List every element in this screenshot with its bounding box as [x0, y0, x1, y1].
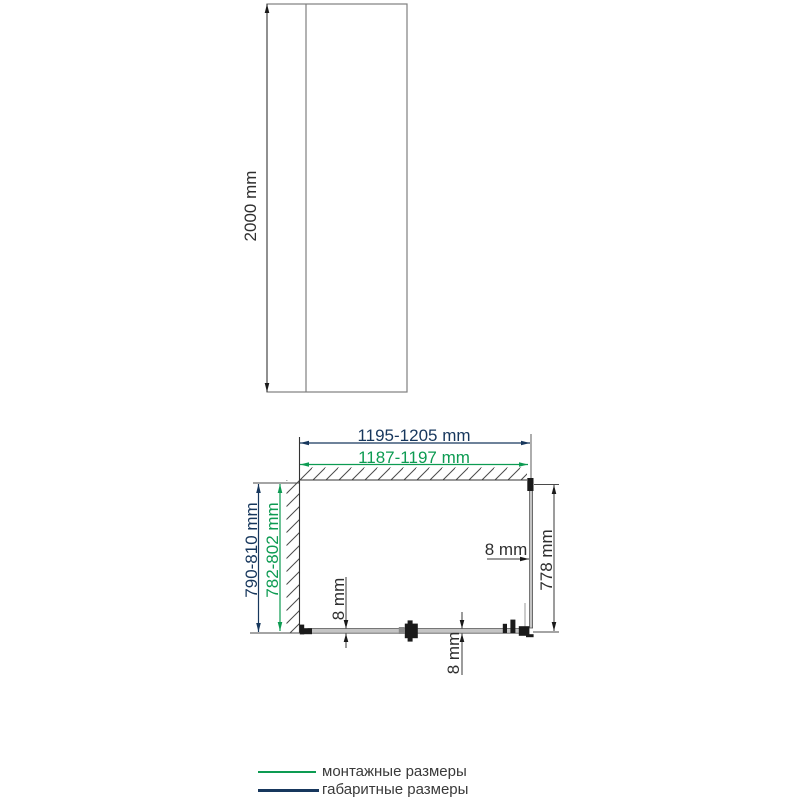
arrow-up-icon	[256, 484, 261, 493]
arrow-down-icon	[278, 622, 283, 631]
panel-overlap-step	[399, 627, 405, 634]
arrow-left-icon	[300, 441, 309, 446]
dim-side-glass-width-label: 778 mm	[538, 525, 556, 595]
right-glass-panel	[530, 490, 533, 628]
dim-mounting-depth-label: 782-802 mm	[264, 495, 282, 605]
arrow-left-icon	[300, 462, 309, 467]
top-wall-hatch	[299, 468, 527, 481]
left-wall-hatch	[287, 480, 300, 633]
arrow-down-icon	[256, 623, 261, 632]
dim-mounting-width-label: 1187-1197 mm	[344, 449, 484, 467]
dim-glass-thickness-door-label: 8 mm	[445, 630, 463, 676]
dim-overall-width-label: 1195-1205 mm	[344, 427, 484, 445]
wall-bracket-top-right	[527, 478, 533, 491]
legend-mounting-label: монтажные размеры	[322, 763, 467, 781]
arrow-right-icon	[521, 441, 530, 446]
door-stopper-tab	[503, 624, 507, 633]
plan-left-wall	[287, 437, 300, 633]
legend-overall-line	[258, 789, 319, 792]
drawing-canvas	[0, 0, 800, 800]
drawing-page: 2000 mm 1195-1205 mm 1187-1197 mm 790-81…	[0, 0, 800, 800]
wall-profile-bottom-left-foot	[304, 628, 313, 634]
door-handle-tab	[510, 620, 515, 634]
arrow-up-icon	[278, 484, 283, 493]
legend-mounting-line	[258, 771, 316, 774]
door-roller-connector	[405, 624, 418, 639]
dim-glass-thickness-side-label: 8 mm	[330, 576, 348, 622]
dim-overall-depth-label: 790-810 mm	[243, 495, 261, 605]
dim-height-label: 2000 mm	[242, 166, 260, 246]
arrow-down-icon	[460, 620, 465, 629]
legend-overall-label: габаритные размеры	[322, 781, 468, 799]
door-roller-knob-bottom	[408, 637, 413, 641]
arrow-up-icon	[552, 485, 557, 494]
dim-glass-thickness-right-label: 8 mm	[483, 541, 529, 559]
arrow-down-icon	[552, 622, 557, 631]
front-view-panel	[267, 4, 407, 392]
corner-connector-foot	[526, 634, 534, 637]
door-roller-knob-top	[408, 620, 413, 624]
arrow-up-icon	[344, 634, 349, 642]
arrow-right-icon	[519, 462, 528, 467]
plan-top-wall	[299, 468, 527, 481]
